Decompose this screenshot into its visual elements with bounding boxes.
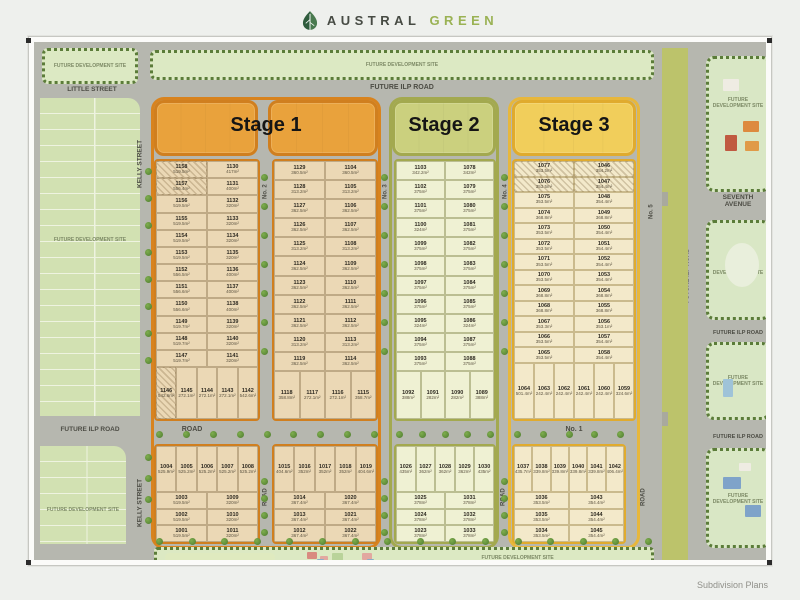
building xyxy=(725,135,737,151)
lot-1135: 1135320m² xyxy=(207,247,258,264)
lot-1075: 1075353.5m² xyxy=(514,192,574,208)
tree-icon xyxy=(145,496,152,503)
tree-icon xyxy=(156,538,163,545)
lot-1070: 1070353.5m² xyxy=(514,270,574,286)
lot-1093: 1093375m² xyxy=(396,352,445,371)
lot-1134: 1134320m² xyxy=(207,230,258,247)
lot-1105: 1105313.2m² xyxy=(325,180,376,199)
lot-1130: 1130417m² xyxy=(207,161,258,178)
lot-1143: 1143272.1m² xyxy=(217,367,237,419)
lot-1090: 1090282m² xyxy=(445,371,470,419)
lot-1074: 1074368.8m² xyxy=(514,208,574,224)
lot-column: 1077353.5m²1076353.5m²1075353.5m²1074368… xyxy=(514,161,574,363)
lot-1121: 1121362.5m² xyxy=(274,314,325,333)
lot-1025: 1025378m² xyxy=(396,492,445,509)
tree-icon xyxy=(145,276,152,283)
lot-1111: 1111362.5m² xyxy=(325,295,376,314)
lot-1158: 1158519.5m² xyxy=(156,161,207,178)
lot-1071: 1071353.5m² xyxy=(514,254,574,270)
seventh-avenue-label: SEVENTH AVENUE xyxy=(715,194,761,209)
tree-icon xyxy=(381,478,388,485)
tree-icon xyxy=(261,290,268,297)
tree-icon xyxy=(381,529,388,536)
lot-1037: 1037435.7m² xyxy=(514,446,532,492)
tree-icon xyxy=(237,431,244,438)
lot-1039: 1039339.8m² xyxy=(551,446,569,492)
tree-row xyxy=(514,431,624,438)
lot-1120: 1120313.2m² xyxy=(274,333,325,352)
lot-1139: 1139320m² xyxy=(207,316,258,333)
lot-1058: 1058354.4m² xyxy=(574,347,634,363)
tree-icon xyxy=(352,538,359,545)
lot-1115: 1115358.7m² xyxy=(351,371,377,419)
lot-1040: 1040339.8m² xyxy=(569,446,587,492)
tree-icon xyxy=(145,475,152,482)
tree-icon xyxy=(145,222,152,229)
lot-1099: 1099375m² xyxy=(396,237,445,256)
lot-1078: 1078342m² xyxy=(445,161,494,180)
tree-icon xyxy=(591,431,598,438)
lot-1019: 1019404.6m² xyxy=(356,446,376,492)
lot-1102: 1102375m² xyxy=(396,180,445,199)
future-dev-site-label: FUTURE DEVELOPMENT SITE xyxy=(711,493,764,505)
tree-icon xyxy=(254,538,261,545)
tree-icon xyxy=(501,319,508,326)
little-street-label: LITTLE STREET xyxy=(44,86,140,93)
lot-1049: 1049368.8m² xyxy=(574,208,634,224)
road-notch xyxy=(662,412,668,426)
tree-icon xyxy=(261,174,268,181)
tree-icon xyxy=(319,538,326,545)
lot-row: 1037435.7m²1038339.8m²1039339.8m²1040339… xyxy=(514,446,624,492)
tree-column xyxy=(261,478,268,536)
lot-1079: 1079375m² xyxy=(445,180,494,199)
lot-columns: 1103342.2m²1102375m²1101375m²1100324m²10… xyxy=(396,161,494,371)
lot-1098: 1098375m² xyxy=(396,256,445,275)
lot-columns: 1129360.5m²1128313.2m²1127362.5m²1126362… xyxy=(274,161,376,371)
lot-1050: 1050354.4m² xyxy=(574,223,634,239)
building xyxy=(317,559,324,560)
lot-1112: 1112362.5m² xyxy=(325,314,376,333)
lot-1016: 1016352m² xyxy=(294,446,314,492)
ilp-road-median xyxy=(662,48,688,560)
building xyxy=(332,553,343,560)
tree-icon xyxy=(145,357,152,364)
lot-row: 1064501.4m²1063242.4m²1062242.4m²1061242… xyxy=(514,363,634,419)
future-dev-site-label: FUTURE DEVELOPMENT SITE xyxy=(394,555,641,560)
future-ilp-road-label-right-lower: FUTURE ILP ROAD xyxy=(702,434,766,440)
tree-icon xyxy=(501,512,508,519)
tree-icon xyxy=(514,431,521,438)
lot-1006: 1006525.2m² xyxy=(197,446,217,492)
future-dev-park-right: FUTURE DEVELOPMENT SITE xyxy=(706,342,766,420)
tree-icon xyxy=(566,431,573,438)
tree-icon xyxy=(384,538,391,545)
tree-icon xyxy=(261,319,268,326)
lot-1065: 1065353.5m² xyxy=(514,347,574,363)
lot-1031: 1031378m² xyxy=(445,492,494,509)
stage1-bottom-right-block: 1015404.6m²1016352m²1017352m²1018352m²10… xyxy=(272,444,378,544)
lot-1028: 1028362m² xyxy=(435,446,455,492)
lot-column: 1020367.4m²1021367.4m²1022367.4m² xyxy=(325,492,376,542)
stage1-right-block: 1129360.5m²1128313.2m²1127362.5m²1126362… xyxy=(272,159,378,421)
tree-icon xyxy=(344,431,351,438)
lot-1026: 1026435m² xyxy=(396,446,416,492)
stage1-bottom-left-block: 1004525.9m²1005525.2m²1006525.2m²1007525… xyxy=(154,444,260,544)
lot-1110: 1110362.5m² xyxy=(325,276,376,295)
tree-icon xyxy=(261,232,268,239)
lot-column: 1009320m²1010320m²1011320m² xyxy=(207,492,258,542)
lot-1020: 1020367.4m² xyxy=(325,492,376,509)
tree-icon xyxy=(482,538,489,545)
lot-1146: 1146542.6m² xyxy=(156,367,176,419)
tree-row xyxy=(156,431,378,438)
lot-1059: 1059324.6m² xyxy=(614,363,634,419)
lot-1109: 1109362.5m² xyxy=(325,256,376,275)
lot-columns: 1036353.5m²1035353.5m²1034353.5m² 104335… xyxy=(514,492,624,542)
road-no5-label: No. 5 xyxy=(646,187,658,237)
lot-1060: 1060242.4m² xyxy=(594,363,614,419)
lot-1043: 1043354.4m² xyxy=(569,492,624,509)
building xyxy=(743,121,759,132)
lot-1137: 1137400m² xyxy=(207,281,258,298)
tree-icon xyxy=(501,174,508,181)
lot-1095: 1095324m² xyxy=(396,314,445,333)
tree-icon xyxy=(381,319,388,326)
tree-icon xyxy=(381,512,388,519)
lot-1089: 1089388m² xyxy=(470,371,495,419)
tree-icon xyxy=(449,538,456,545)
tree-icon xyxy=(501,348,508,355)
future-dev-site-top-strip: FUTURE DEVELOPMENT SITE xyxy=(150,50,654,80)
lot-column: 1158519.5m²1157556.4m²1156519.5m²1155519… xyxy=(156,161,207,367)
lot-1129: 1129360.5m² xyxy=(274,161,325,180)
lot-row: 1015404.6m²1016352m²1017352m²1018352m²10… xyxy=(274,446,376,492)
lot-1032: 1032378m² xyxy=(445,509,494,526)
tree-column xyxy=(145,454,152,524)
lot-1055: 1055368.8m² xyxy=(574,301,634,317)
lot-1062: 1062242.4m² xyxy=(554,363,574,419)
stage3-title: Stage 3 xyxy=(512,114,636,137)
lot-1126: 1126362.5m² xyxy=(274,218,325,237)
lot-1044: 1044354.4m² xyxy=(569,509,624,526)
lot-1104: 1104360.5m² xyxy=(325,161,376,180)
tree-icon xyxy=(290,431,297,438)
tree-icon xyxy=(501,495,508,502)
lot-1087: 1087375m² xyxy=(445,333,494,352)
lot-1100: 1100324m² xyxy=(396,218,445,237)
lot-column: 1043354.4m²1044354.4m²1045354.4m² xyxy=(569,492,624,542)
lot-1145: 1145272.1m² xyxy=(176,367,196,419)
lot-1097: 1097375m² xyxy=(396,276,445,295)
tree-column xyxy=(381,478,388,536)
future-dev-site-label: FUTURE DEVELOPMENT SITE xyxy=(40,238,140,244)
future-dev-park-top-right: FUTURE DEVELOPMENT SITE xyxy=(706,56,766,192)
lot-1147: 1147519.7m² xyxy=(156,350,207,367)
pond xyxy=(725,243,759,287)
lot-1077: 1077353.5m² xyxy=(514,161,574,177)
tree-icon xyxy=(145,195,152,202)
tree-icon xyxy=(547,538,554,545)
tree-icon xyxy=(145,517,152,524)
caption-subdivision-plans: Subdivision Plans xyxy=(697,580,768,590)
lot-columns: 1077353.5m²1076353.5m²1075353.5m²1074368… xyxy=(514,161,634,363)
lot-1119: 1119362.5m² xyxy=(274,352,325,371)
lot-row: 1026435m²1027362m²1028362m²1029362m²1030… xyxy=(396,446,494,492)
lot-1142: 1142542.6m² xyxy=(238,367,258,419)
lot-1083: 1083375m² xyxy=(445,256,494,275)
lot-1094: 1094375m² xyxy=(396,333,445,352)
stage3-bottom-block: 1037435.7m²1038339.8m²1039339.8m²1040339… xyxy=(512,444,626,544)
lot-column: 1036353.5m²1035353.5m²1034353.5m² xyxy=(514,492,569,542)
lot-row: 1004525.9m²1005525.2m²1006525.2m²1007525… xyxy=(156,446,258,492)
building xyxy=(723,477,741,489)
subdivision-plan-map: FUTURE DEVELOPMENT SITE LITTLE STREET FU… xyxy=(34,42,766,560)
tree-icon xyxy=(464,431,471,438)
brand-word-green: GREEN xyxy=(429,13,498,28)
tree-icon xyxy=(264,431,271,438)
lot-1144: 1144272.1m² xyxy=(197,367,217,419)
lot-1008: 1008525.2m² xyxy=(238,446,258,492)
lot-column: 1025378m²1024378m²1023378m² xyxy=(396,492,445,542)
lot-1133: 1133320m² xyxy=(207,213,258,230)
lot-1138: 1138400m² xyxy=(207,298,258,315)
tree-icon xyxy=(261,529,268,536)
lot-1154: 1154519.5m² xyxy=(156,230,207,247)
lot-1014: 1014367.4m² xyxy=(274,492,325,509)
lot-1080: 1080375m² xyxy=(445,199,494,218)
tree-icon xyxy=(501,478,508,485)
lot-1107: 1107362.5m² xyxy=(325,218,376,237)
lot-1084: 1084375m² xyxy=(445,276,494,295)
lot-1017: 1017352m² xyxy=(315,446,335,492)
lot-1106: 1106362.5m² xyxy=(325,199,376,218)
future-dev-site-label: FUTURE DEVELOPMENT SITE xyxy=(711,375,764,387)
lot-1122: 1122362.5m² xyxy=(274,295,325,314)
tree-icon xyxy=(617,431,624,438)
lot-1036: 1036353.5m² xyxy=(514,492,569,509)
tree-icon xyxy=(145,454,152,461)
lot-1131: 1131400m² xyxy=(207,178,258,195)
lot-1132: 1132320m² xyxy=(207,195,258,212)
lot-1124: 1124362.5m² xyxy=(274,256,325,275)
lot-1027: 1027362m² xyxy=(416,446,436,492)
tree-icon xyxy=(501,529,508,536)
lot-column: 1103342.2m²1102375m²1101375m²1100324m²10… xyxy=(396,161,445,371)
building xyxy=(723,379,733,397)
lot-1155: 1155519.5m² xyxy=(156,213,207,230)
tree-row xyxy=(396,431,494,438)
tree-icon xyxy=(501,203,508,210)
tree-icon xyxy=(145,168,152,175)
future-dev-grid-left xyxy=(40,98,140,416)
lot-1052: 1052354.4m² xyxy=(574,254,634,270)
tree-icon xyxy=(371,431,378,438)
future-ilp-road-label-top: FUTURE ILP ROAD xyxy=(150,84,654,92)
stage2-title: Stage 2 xyxy=(392,114,496,137)
lot-1085: 1085375m² xyxy=(445,295,494,314)
tree-icon xyxy=(580,538,587,545)
tree-icon xyxy=(419,431,426,438)
lot-1024: 1024378m² xyxy=(396,509,445,526)
stage1-left-block: 1158519.5m²1157556.4m²1156519.5m²1155519… xyxy=(154,159,260,421)
building xyxy=(307,552,317,559)
lot-1004: 1004525.9m² xyxy=(156,446,176,492)
lot-1128: 1128313.2m² xyxy=(274,180,325,199)
lot-1048: 1048354.4m² xyxy=(574,192,634,208)
lot-1082: 1082375m² xyxy=(445,237,494,256)
tree-icon xyxy=(221,538,228,545)
stage3-block: 1077353.5m²1076353.5m²1075353.5m²1074368… xyxy=(512,159,636,421)
field-patch xyxy=(165,553,275,560)
tree-icon xyxy=(261,261,268,268)
lot-column: 1130417m²1131400m²1132320m²1133320m²1134… xyxy=(207,161,258,367)
tree-icon xyxy=(396,431,403,438)
lot-1035: 1035353.5m² xyxy=(514,509,569,526)
lot-column: 1014367.4m²1013367.4m²1012367.4m² xyxy=(274,492,325,542)
lot-1076: 1076353.5m² xyxy=(514,177,574,193)
lot-1056: 1056353.1m² xyxy=(574,316,634,332)
tree-icon xyxy=(501,290,508,297)
frame-corner-mark xyxy=(767,38,772,43)
tree-icon xyxy=(501,261,508,268)
lot-1029: 1029362m² xyxy=(455,446,475,492)
lot-column: 1129360.5m²1128313.2m²1127362.5m²1126362… xyxy=(274,161,325,371)
lot-1041: 1041339.8m² xyxy=(587,446,605,492)
tree-icon xyxy=(145,249,152,256)
lot-1061: 1061242.4m² xyxy=(574,363,594,419)
lot-columns: 1003519.5m²1002519.5m²1001519.5m² 100932… xyxy=(156,492,258,542)
lot-1007: 1007525.2m² xyxy=(217,446,237,492)
lot-1063: 1063242.4m² xyxy=(534,363,554,419)
future-dev-site-label: FUTURE DEVELOPMENT SITE xyxy=(173,62,631,68)
lot-1156: 1156519.5m² xyxy=(156,195,207,212)
tree-icon xyxy=(381,495,388,502)
tree-icon xyxy=(261,348,268,355)
lot-1092: 1092388m² xyxy=(396,371,421,419)
tree-icon xyxy=(381,203,388,210)
lot-1005: 1005525.2m² xyxy=(176,446,196,492)
tree-icon xyxy=(156,431,163,438)
frame-corner-mark xyxy=(26,38,31,43)
brand-header: AUSTRAL GREEN xyxy=(0,7,800,33)
tree-icon xyxy=(183,431,190,438)
lot-1073: 1073353.5m² xyxy=(514,223,574,239)
lot-1088: 1088375m² xyxy=(445,352,494,371)
lot-1116: 1116272.1m² xyxy=(325,371,351,419)
tree-icon xyxy=(381,174,388,181)
lot-1114: 1114362.5m² xyxy=(325,352,376,371)
lot-1053: 1053354.4m² xyxy=(574,270,634,286)
lot-1101: 1101375m² xyxy=(396,199,445,218)
tree-icon xyxy=(261,495,268,502)
road-notch xyxy=(662,192,668,206)
lot-column: 1078342m²1079375m²1080375m²1081375m²1082… xyxy=(445,161,494,371)
lot-1081: 1081375m² xyxy=(445,218,494,237)
lot-row: 1118358.8m²1117272.1m²1116272.1m²1115358… xyxy=(274,371,376,419)
lot-1096: 1096375m² xyxy=(396,295,445,314)
lot-column: 1031378m²1032378m²1033378m² xyxy=(445,492,494,542)
building xyxy=(745,505,761,517)
lot-1157: 1157556.4m² xyxy=(156,178,207,195)
tree-icon xyxy=(317,431,324,438)
tree-icon xyxy=(381,261,388,268)
lot-1141: 1141320m² xyxy=(207,350,258,367)
future-dev-park-mid-right: FUTURE DEVELOPMENT SITE xyxy=(706,220,766,320)
lot-1103: 1103342.2m² xyxy=(396,161,445,180)
building xyxy=(739,463,751,471)
lot-1072: 1072353.5m² xyxy=(514,239,574,255)
tree-column xyxy=(261,174,268,355)
lot-1054: 1054368.8m² xyxy=(574,285,634,301)
lot-row: 1146542.6m²1145272.1m²1144272.1m²1143272… xyxy=(156,367,258,419)
lot-1018: 1018352m² xyxy=(335,446,355,492)
tree-icon xyxy=(145,330,152,337)
lot-1148: 1148519.7m² xyxy=(156,333,207,350)
lot-1127: 1127362.5m² xyxy=(274,199,325,218)
future-dev-site-top-left: FUTURE DEVELOPMENT SITE xyxy=(42,48,138,84)
tree-icon xyxy=(261,478,268,485)
tree-column xyxy=(381,174,388,355)
lot-1042: 1042406.4m² xyxy=(606,446,624,492)
lot-1150: 1150556.6m² xyxy=(156,298,207,315)
lot-1091: 1091282m² xyxy=(421,371,446,419)
lot-1013: 1013367.4m² xyxy=(274,509,325,526)
tree-icon xyxy=(381,232,388,239)
lot-1009: 1009320m² xyxy=(207,492,258,509)
lot-1149: 1149519.7m² xyxy=(156,316,207,333)
future-dev-grid-left-bottom xyxy=(40,446,126,544)
lot-1003: 1003519.5m² xyxy=(156,492,207,509)
future-dev-site-label: FUTURE DEVELOPMENT SITE xyxy=(711,97,764,109)
lot-1002: 1002519.5m² xyxy=(156,509,207,526)
lot-1015: 1015404.6m² xyxy=(274,446,294,492)
lot-column: 1046354.2m²1047354.4m²1048354.4m²1049368… xyxy=(574,161,634,363)
lot-columns: 1158519.5m²1157556.4m²1156519.5m²1155519… xyxy=(156,161,258,367)
lot-1051: 1051354.4m² xyxy=(574,239,634,255)
lot-1117: 1117272.1m² xyxy=(300,371,326,419)
lot-1118: 1118358.8m² xyxy=(274,371,300,419)
future-ilp-road-label-left: FUTURE ILP ROAD xyxy=(34,426,146,433)
lot-1125: 1125313.2m² xyxy=(274,237,325,256)
lot-1136: 1136400m² xyxy=(207,264,258,281)
lot-1064: 1064501.4m² xyxy=(514,363,534,419)
road-label-vertical: ROAD xyxy=(638,472,650,522)
lot-1066: 1066353.5m² xyxy=(514,332,574,348)
lot-columns: 1014367.4m²1013367.4m²1012367.4m² 102036… xyxy=(274,492,376,542)
building xyxy=(723,79,739,91)
lot-row: 1092388m²1091282m²1090282m²1089388m² xyxy=(396,371,494,419)
lot-1152: 1152556.5m² xyxy=(156,264,207,281)
subdivision-plan-frame: FUTURE DEVELOPMENT SITE LITTLE STREET FU… xyxy=(28,36,772,566)
stage1-title: Stage 1 xyxy=(154,114,378,137)
lot-columns: 1025378m²1024378m²1023378m² 1031378m²103… xyxy=(396,492,494,542)
tree-icon xyxy=(417,538,424,545)
tree-icon xyxy=(381,290,388,297)
lot-1057: 1057354.4m² xyxy=(574,332,634,348)
stage2-block: 1103342.2m²1102375m²1101375m²1100324m²10… xyxy=(394,159,496,421)
tree-icon xyxy=(286,538,293,545)
tree-icon xyxy=(501,232,508,239)
building xyxy=(367,559,374,560)
tree-column xyxy=(501,478,508,536)
lot-1046: 1046354.2m² xyxy=(574,161,634,177)
lot-1047: 1047354.4m² xyxy=(574,177,634,193)
lot-column: 1003519.5m²1002519.5m²1001519.5m² xyxy=(156,492,207,542)
lot-1123: 1123362.5m² xyxy=(274,276,325,295)
lot-1113: 1113313.2m² xyxy=(325,333,376,352)
leaf-icon xyxy=(302,11,318,30)
